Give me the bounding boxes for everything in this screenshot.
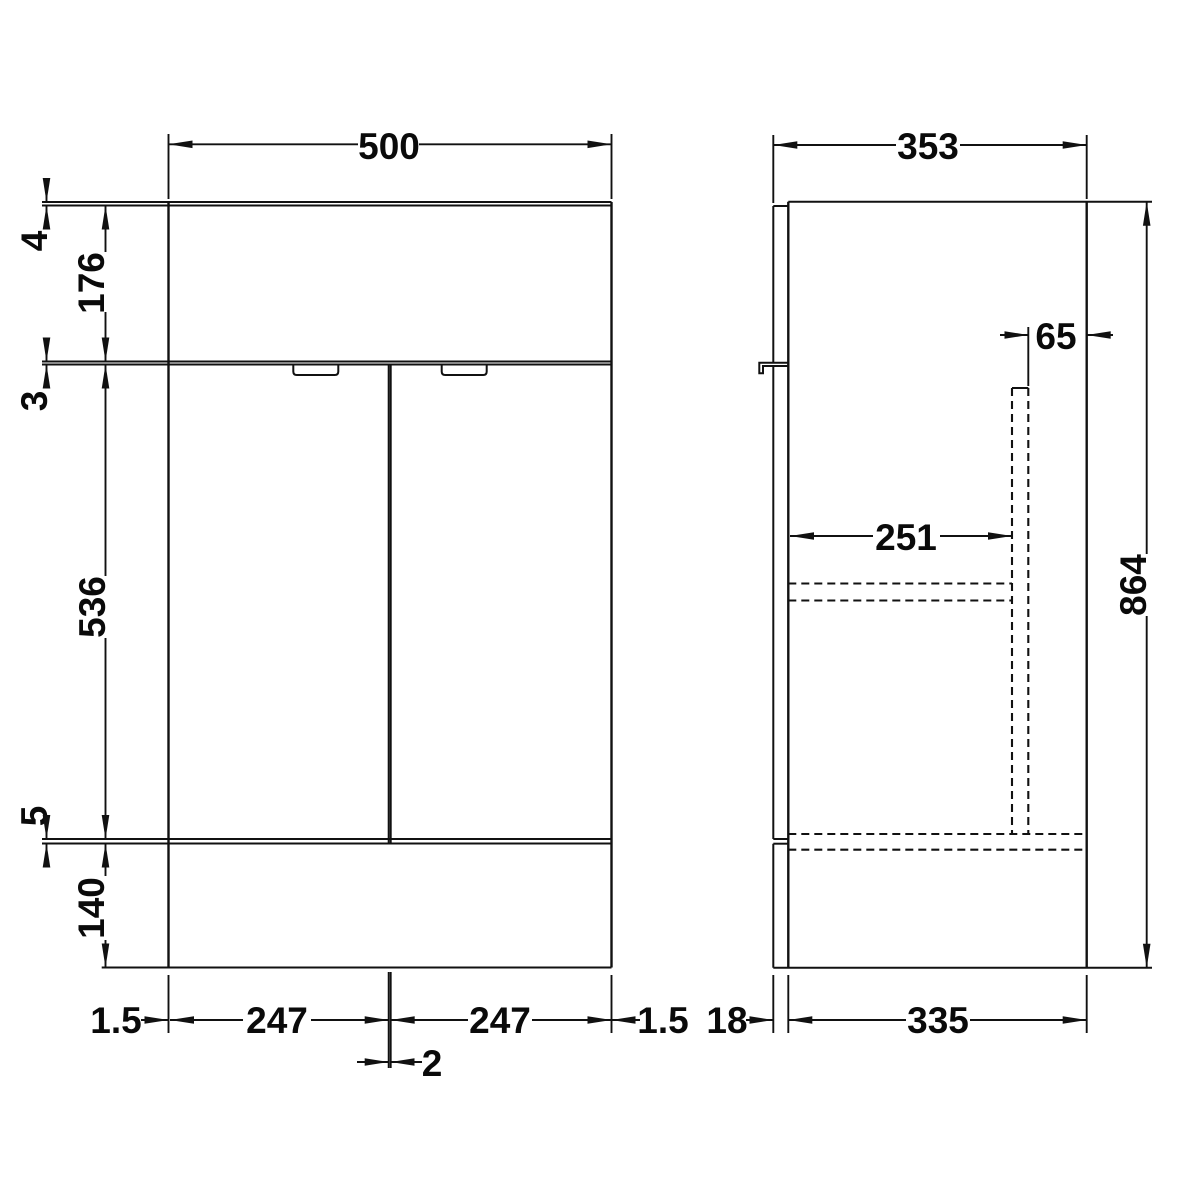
drawing-svg: 500 4 176 3 536 5 140 1.5 [0, 0, 1200, 1200]
dim-centre-gap-label: 2 [422, 1043, 443, 1084]
dim-worktop-label: 4 [14, 230, 55, 251]
dim-back-recess-label: 65 [1035, 316, 1076, 357]
front-view-dimensions: 500 4 176 3 536 5 140 1.5 [14, 126, 689, 1084]
handle-notch-left-door [293, 365, 338, 375]
dim-left-door-label: 247 [246, 1000, 308, 1041]
dim-top-section-label: 176 [71, 252, 112, 314]
dim-right-door-label: 247 [469, 1000, 531, 1041]
dim-plinth-label: 140 [71, 877, 112, 939]
dim-left-gap-label: 1.5 [90, 1000, 141, 1041]
dim-width-label: 500 [358, 126, 420, 167]
dim-carcass-depth-label: 335 [907, 1000, 969, 1041]
dim-top-gap-label: 3 [14, 391, 55, 412]
dim-depth-label: 353 [897, 126, 959, 167]
dim-front-panel-label: 18 [706, 1000, 747, 1041]
dim-bottom-gap-label: 5 [14, 806, 55, 827]
dim-internal-depth-label: 251 [875, 517, 937, 558]
dim-overall-height-label: 864 [1113, 554, 1154, 616]
front-view [42, 202, 612, 968]
dim-door-height-label: 536 [72, 576, 113, 638]
vanity-unit-technical-drawing: 500 4 176 3 536 5 140 1.5 [0, 0, 1200, 1200]
handle-notch-right-door [442, 365, 487, 375]
side-view [759, 202, 1152, 968]
dim-right-gap-label: 1.5 [637, 1000, 688, 1041]
